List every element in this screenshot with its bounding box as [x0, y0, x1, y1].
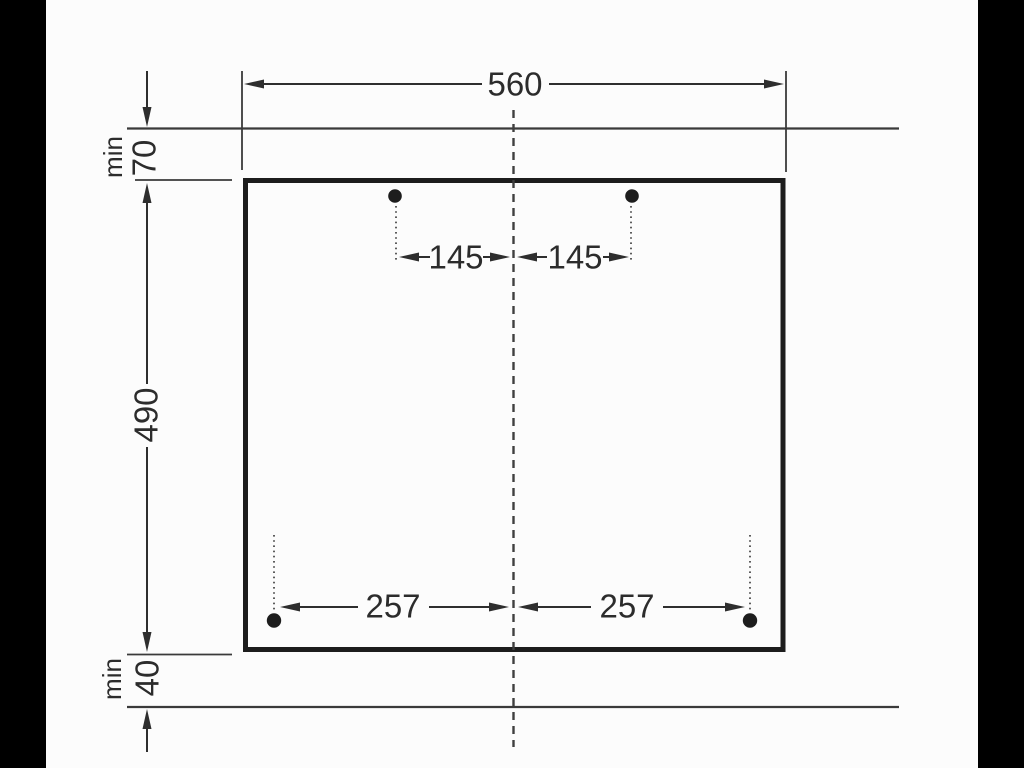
dim-257R-arrow-left-icon	[518, 603, 538, 612]
mounting-hole-bottom-left	[267, 613, 281, 627]
dim-560-arrow-right-icon	[764, 80, 784, 89]
dim-min70-prefix-label: min	[98, 136, 128, 178]
dimension-height-490: 490	[128, 183, 165, 652]
letterbox-right-bar	[978, 0, 1024, 768]
dim-560-arrow-left-icon	[244, 80, 264, 89]
dim-min40-arrow-up-icon	[143, 709, 152, 729]
dim-min70-value-label: 70	[126, 140, 163, 177]
dim-145L-arrow-right-icon	[490, 253, 510, 262]
diagram-canvas: 560 min 70 490 min 40	[0, 0, 1024, 768]
dim-257R-arrow-right-icon	[725, 603, 745, 612]
dimension-top-clearance-min70: min 70	[98, 71, 232, 180]
dim-min70-arrow-down-icon	[143, 107, 152, 127]
dim-145R-arrow-right-icon	[609, 253, 629, 262]
mounting-hole-bottom-right	[743, 613, 757, 627]
dimension-bottom-hole-right-257: 257	[518, 588, 745, 625]
dim-145R-arrow-left-icon	[517, 253, 537, 262]
mounting-hole-top-right	[625, 189, 639, 203]
dim-min40-prefix-label: min	[97, 658, 127, 700]
dim-490-arrow-up-icon	[143, 183, 152, 203]
dim-257L-label: 257	[365, 588, 420, 625]
letterbox-left-bar	[0, 0, 46, 768]
dim-min40-value-label: 40	[129, 660, 166, 697]
dim-490-arrow-down-icon	[143, 632, 152, 652]
dim-145L-label: 145	[428, 239, 483, 276]
dim-257R-label: 257	[599, 588, 654, 625]
dim-490-label: 490	[128, 387, 165, 442]
dimension-bottom-clearance-min40: min 40	[97, 655, 232, 753]
dimension-bottom-hole-left-257: 257	[280, 588, 509, 625]
dim-257L-arrow-right-icon	[489, 603, 509, 612]
mounting-hole-top-left	[388, 189, 402, 203]
dimension-top-hole-right-145: 145	[517, 239, 629, 276]
dim-560-label: 560	[487, 66, 542, 103]
dimension-top-hole-left-145: 145	[399, 239, 510, 276]
dim-145R-label: 145	[547, 239, 602, 276]
dim-257L-arrow-left-icon	[280, 603, 300, 612]
dimension-diagram: 560 min 70 490 min 40	[0, 0, 1024, 768]
dim-145L-arrow-left-icon	[399, 253, 419, 262]
